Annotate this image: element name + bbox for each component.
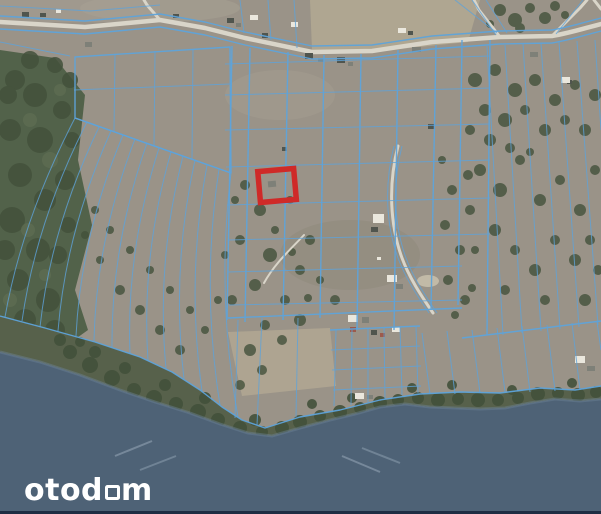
listing-map-screenshot: otodm (0, 0, 601, 514)
map-image[interactable] (0, 0, 601, 514)
otodom-logo-text-left: otod (24, 473, 103, 508)
otodom-logo-text-right: m (121, 473, 153, 508)
otodom-logo-square-icon (105, 485, 120, 500)
otodom-logo: otodm (24, 476, 153, 506)
